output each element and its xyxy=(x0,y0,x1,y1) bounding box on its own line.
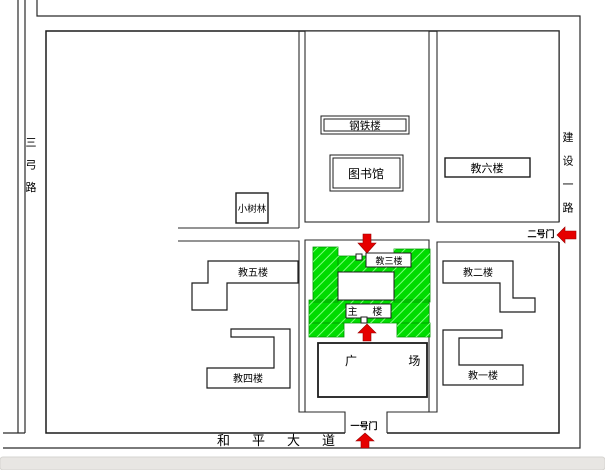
bottom-gray-bar xyxy=(0,457,605,470)
road-right-label: 建设一路 xyxy=(563,130,574,215)
library-label: 图书馆 xyxy=(348,166,384,181)
grove-label: 小树林 xyxy=(238,203,267,215)
road-bottom-label: 和平大道 xyxy=(217,433,357,448)
up-arrow-gate1-icon xyxy=(356,433,374,448)
gate2-label: 二号门 xyxy=(527,228,554,239)
teach5-label: 教五楼 xyxy=(238,266,268,279)
main-door-marker-bottom xyxy=(361,317,367,323)
gate1-label: 一号门 xyxy=(350,420,377,431)
main-building-courtyard xyxy=(338,272,394,300)
left-arrow-gate2-icon xyxy=(557,227,576,243)
up-arrow-main-icon xyxy=(358,324,376,341)
main-building-label: 主 楼 xyxy=(348,305,389,318)
teach3-label: 教三楼 xyxy=(375,255,402,266)
teach6-label: 教六楼 xyxy=(471,161,504,175)
steel-building-label: 钢铁楼 xyxy=(349,119,381,132)
teach4-label: 教四楼 xyxy=(233,372,263,385)
road-left-label: 三弓路 xyxy=(26,137,37,194)
teach2-label: 教二楼 xyxy=(463,266,493,279)
down-arrow-icon xyxy=(358,234,376,253)
main-door-marker-top xyxy=(356,254,362,260)
campus-map: 钢铁楼 图书馆 教六楼 小树林 教五楼 教二楼 教四楼 教一楼 广 场 教三楼 … xyxy=(0,0,605,470)
block-top-right xyxy=(437,31,559,222)
plaza-label: 广 场 xyxy=(345,354,444,368)
campus-map-drawing: 钢铁楼 图书馆 教六楼 小树林 教五楼 教二楼 教四楼 教一楼 广 场 教三楼 … xyxy=(0,0,605,470)
plaza-box xyxy=(318,343,427,397)
teach1-label: 教一楼 xyxy=(468,369,498,382)
